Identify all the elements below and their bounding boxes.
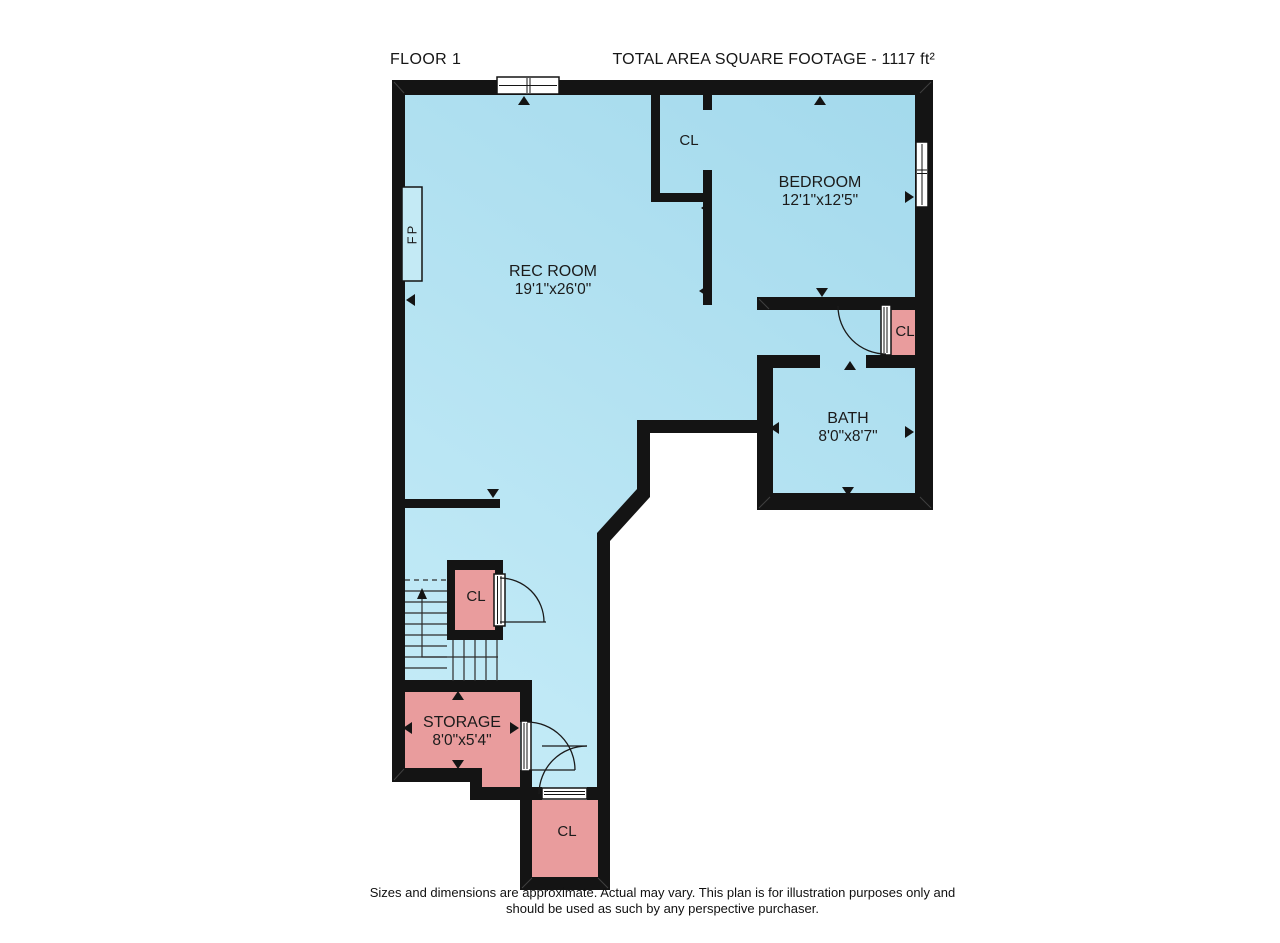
closet-bath-door [881, 305, 891, 355]
rec-room-label: REC ROOM 19'1"x26'0" [509, 263, 597, 299]
bedroom-label: BEDROOM 12'1"x12'5" [779, 174, 862, 210]
rec-room-dimensions: 19'1"x26'0" [509, 281, 597, 299]
bedroom-name: BEDROOM [779, 174, 862, 192]
rec-room-name: REC ROOM [509, 263, 597, 281]
closet-stairs-label: CL [466, 588, 485, 605]
disclaimer-line-1: Sizes and dimensions are approximate. Ac… [45, 885, 1280, 901]
disclaimer: Sizes and dimensions are approximate. Ac… [45, 885, 1280, 917]
storage-dimensions: 8'0"x5'4" [423, 732, 501, 750]
bath-dimensions: 8'0"x8'7" [818, 428, 877, 446]
bedroom-window [916, 142, 928, 207]
floor-title: FLOOR 1 [390, 51, 461, 69]
storage-door [521, 721, 531, 771]
closet-hall-label: CL [679, 132, 698, 149]
closet-bath-label: CL [895, 323, 914, 340]
disclaimer-line-2: should be used as such by any perspectiv… [45, 901, 1280, 917]
closet-entry-label: CL [557, 823, 576, 840]
floor-plan-page: FLOOR 1 TOTAL AREA SQUARE FOOTAGE - 1117… [0, 0, 1280, 943]
bath-label: BATH 8'0"x8'7" [818, 410, 877, 446]
floor-plan-canvas [0, 0, 1280, 943]
storage-room-step-fill [482, 768, 520, 788]
bedroom-dimensions: 12'1"x12'5" [779, 192, 862, 210]
closet-entry-door [542, 788, 587, 799]
top-window [497, 77, 559, 94]
bath-name: BATH [818, 410, 877, 428]
fireplace-label: FP [405, 224, 420, 245]
total-area-label: TOTAL AREA SQUARE FOOTAGE - 1117 ft² [612, 51, 935, 69]
storage-name: STORAGE [423, 714, 501, 732]
closet-stairs-door [494, 574, 505, 626]
storage-label: STORAGE 8'0"x5'4" [423, 714, 501, 750]
